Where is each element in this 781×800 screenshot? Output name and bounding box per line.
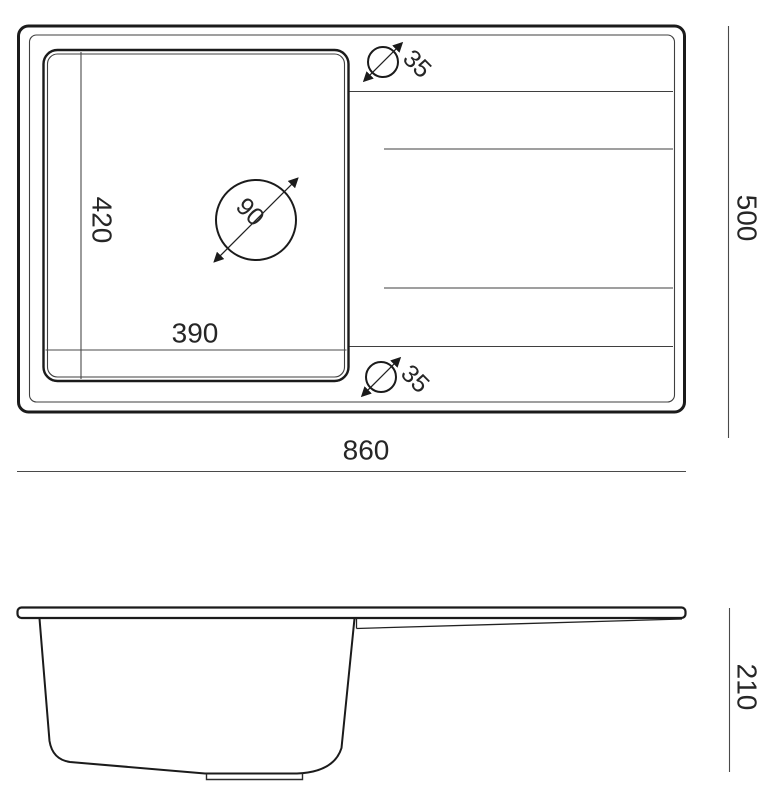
dim-label-tap-hole-top: 35 — [397, 44, 436, 83]
bowl-profile — [40, 619, 355, 774]
technical-drawing-page: 420 390 90 35 35 500 860 — [0, 0, 781, 800]
dim-label-overall-depth: 500 — [732, 195, 763, 242]
countertop-slab — [18, 608, 686, 619]
tap-hole-top-diameter-line — [364, 43, 402, 81]
dim-label-basin-width: 390 — [172, 318, 219, 349]
dim-label-basin-depth: 420 — [87, 197, 118, 244]
dim-label-tap-hole-bottom: 35 — [395, 359, 434, 398]
dim-label-overall-width: 860 — [343, 435, 390, 466]
dim-label-overall-height: 210 — [732, 664, 763, 711]
side-view: 210 — [18, 608, 763, 780]
drainboard-underside-line — [357, 619, 683, 629]
top-view: 420 390 90 35 35 500 860 — [17, 26, 763, 472]
sink-technical-drawing: 420 390 90 35 35 500 860 — [0, 0, 781, 800]
tap-hole-bottom-diameter-line — [362, 358, 400, 396]
